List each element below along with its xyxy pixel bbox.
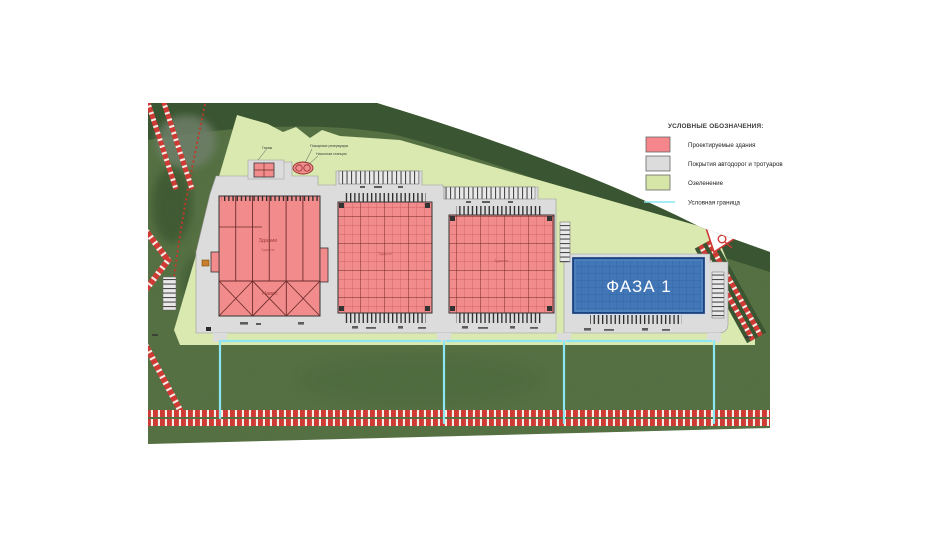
building-b-label: Здание: [378, 251, 392, 256]
building-c-label: Здание: [494, 258, 508, 263]
site-plan-page: Здание Здание Навес Здание Здание: [0, 0, 944, 556]
legend-label-buildings: Проектируемые здания: [688, 142, 756, 149]
legend-label-greenery: Озеленение: [688, 180, 724, 187]
parking-strip-mid: [560, 222, 570, 262]
legend-item-buildings: Проектируемые здания: [646, 137, 756, 152]
fire-tanks: [293, 162, 313, 174]
building-a-label: Здание: [259, 238, 278, 244]
parking-strip-1: [339, 171, 419, 184]
legend-item-greenery: Озеленение: [646, 175, 724, 190]
checkpoint: [248, 160, 284, 179]
stripe-bottom-2: [148, 419, 770, 426]
building-a-notch: [211, 252, 219, 272]
legend-swatch-buildings: [646, 137, 670, 152]
legend-title: УСЛОВНЫЕ ОБОЗНАЧЕНИЯ:: [668, 123, 764, 130]
legend-swatch-greenery: [646, 175, 670, 190]
building-a-canopy-label: Навес: [262, 291, 278, 297]
building-a-annex: [320, 248, 328, 282]
note-pump: Насосная станция: [316, 152, 347, 156]
building-c: Здание: [449, 206, 554, 323]
legend-item-roads: Покрытия автодорог и тротуаров: [646, 156, 783, 171]
building-a-label-2: Здание: [261, 247, 275, 252]
small-structure: [206, 327, 211, 331]
site-plan-svg: Здание Здание Навес Здание Здание: [0, 0, 944, 556]
note-tanks: Пожарные резервуары: [310, 144, 349, 148]
legend-label-boundary: Условная граница: [688, 200, 741, 207]
stripe-bottom-1: [148, 410, 770, 417]
parking-strip-right: [712, 272, 724, 318]
phase1-docks: [590, 315, 682, 324]
parking-strip-left: [163, 277, 176, 310]
aerial-photo: Здание Здание Навес Здание Здание: [138, 101, 770, 444]
parking-strip-2: [444, 187, 535, 199]
phase1-label: ФАЗА 1: [606, 277, 671, 296]
building-a: Здание Здание Навес: [211, 196, 328, 316]
legend-label-roads: Покрытия автодорог и тротуаров: [688, 161, 783, 168]
grass-patch: [300, 354, 540, 406]
legend: УСЛОВНЫЕ ОБОЗНАЧЕНИЯ: Проектируемые здан…: [644, 123, 783, 207]
note-garage: Гараж: [262, 146, 273, 150]
building-b: Здание: [338, 193, 432, 323]
utility-box: [202, 260, 209, 266]
legend-item-boundary: Условная граница: [644, 200, 741, 207]
legend-swatch-roads: [646, 156, 670, 171]
